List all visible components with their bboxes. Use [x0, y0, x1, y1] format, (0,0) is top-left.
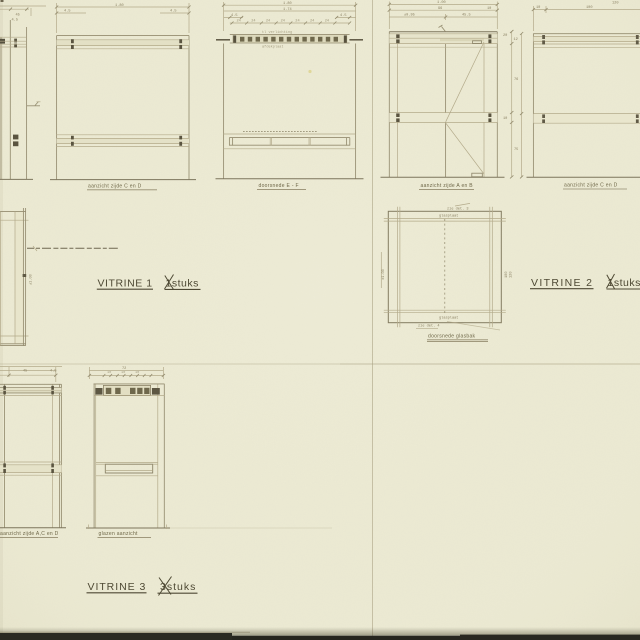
- svg-text:10: 10: [121, 371, 125, 375]
- svg-text:1.80: 1.80: [115, 4, 124, 8]
- svg-text:96: 96: [438, 7, 442, 11]
- svg-text:tl verlichting: tl verlichting: [262, 30, 292, 35]
- svg-text:24: 24: [295, 20, 299, 24]
- svg-text:45: 45: [23, 370, 27, 374]
- svg-text:glasplaat: glasplaat: [439, 214, 458, 219]
- svg-text:10: 10: [536, 6, 540, 10]
- svg-text:10: 10: [135, 371, 139, 375]
- svg-text:doorsnede glasbak: doorsnede glasbak: [428, 334, 476, 340]
- svg-text:100: 100: [586, 6, 592, 10]
- svg-text:4.5: 4.5: [50, 370, 56, 374]
- svg-text:4.5: 4.5: [64, 10, 70, 14]
- svg-text:±1.00: ±1.00: [382, 269, 386, 280]
- svg-text:aanzicht zijde C en D: aanzicht zijde C en D: [88, 184, 142, 190]
- svg-text:4.5: 4.5: [170, 10, 176, 14]
- svg-text:aanzicht zijde A en B: aanzicht zijde A en B: [421, 183, 474, 189]
- svg-text:120: 120: [510, 272, 514, 278]
- svg-text:120: 120: [612, 1, 618, 5]
- svg-text:24: 24: [266, 20, 270, 24]
- svg-text:24: 24: [325, 20, 329, 24]
- svg-text:1.74: 1.74: [283, 8, 292, 12]
- svg-text:aanzicht zijde A,C en D: aanzicht zijde A,C en D: [0, 531, 59, 537]
- svg-text:VITRINE 2: VITRINE 2: [531, 277, 593, 289]
- svg-text:glasplaat: glasplaat: [439, 315, 458, 320]
- svg-text:1.80: 1.80: [283, 2, 292, 6]
- svg-text:20: 20: [503, 34, 507, 38]
- svg-text:24: 24: [237, 20, 241, 24]
- svg-text:zie det. 4: zie det. 4: [418, 324, 440, 329]
- svg-text:VITRINE 1: VITRINE 1: [98, 278, 153, 290]
- svg-text:24: 24: [281, 20, 285, 24]
- svg-text:4.5: 4.5: [12, 19, 18, 23]
- svg-text:76: 76: [514, 78, 518, 82]
- svg-text:24: 24: [251, 20, 255, 24]
- svg-text:45: 45: [16, 14, 20, 18]
- svg-text:VITRINE 3: VITRINE 3: [88, 581, 147, 593]
- svg-text:glazen aanzicht: glazen aanzicht: [99, 531, 139, 537]
- svg-text:zie det. 3: zie det. 3: [447, 207, 469, 212]
- svg-text:10: 10: [107, 371, 111, 375]
- svg-text:75: 75: [514, 148, 518, 152]
- svg-text:4.5: 4.5: [231, 14, 237, 18]
- svg-text:100: 100: [505, 272, 509, 278]
- svg-text:aanzicht zijde C en D: aanzicht zijde C en D: [564, 183, 618, 189]
- svg-text:doorsnede E - F: doorsnede E - F: [259, 183, 299, 189]
- svg-text:45.5: 45.5: [462, 13, 471, 17]
- svg-text:10: 10: [503, 117, 507, 121]
- svg-text:12: 12: [514, 38, 518, 42]
- svg-text:±1.00: ±1.00: [30, 274, 34, 285]
- svg-text:10: 10: [487, 7, 491, 11]
- svg-text:24: 24: [310, 20, 314, 24]
- svg-text:1.00: 1.00: [437, 1, 446, 5]
- svg-text:±0.95: ±0.95: [404, 13, 415, 17]
- svg-text:4.5: 4.5: [340, 14, 346, 18]
- svg-text:afdekplaat: afdekplaat: [262, 45, 284, 50]
